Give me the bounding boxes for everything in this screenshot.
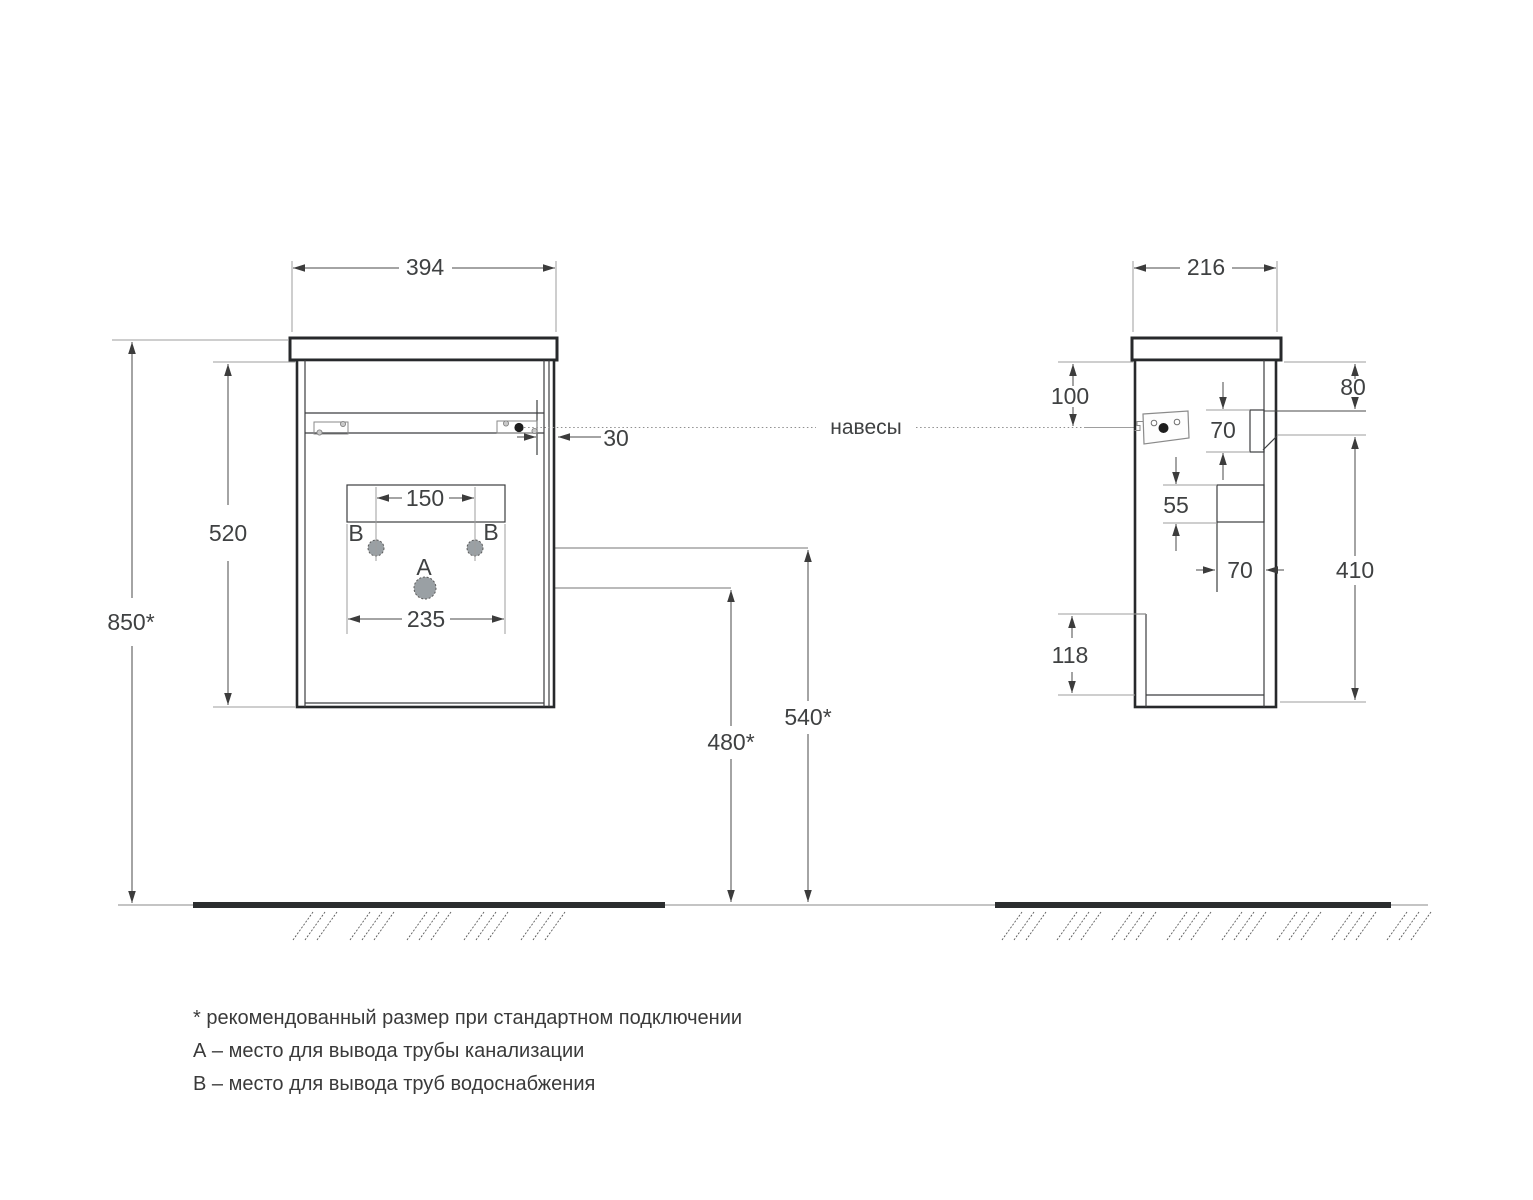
dim-value-216: 216 — [1187, 254, 1225, 280]
dim-hanger-from-top: 100 — [1051, 362, 1133, 426]
side-cabinet-body — [1135, 360, 1276, 707]
cabinet-installation-drawing: B B A 394 850* 520 30 150 235 — [0, 0, 1533, 1200]
dim-value-70-horiz: 70 — [1227, 557, 1253, 583]
technical-drawing-page: B B A 394 850* 520 30 150 235 — [0, 0, 1533, 1200]
dim-value-80: 80 — [1340, 374, 1366, 400]
dim-value-540: 540* — [784, 704, 831, 730]
footnote-recommended-size: * рекомендованный размер при стандартном… — [193, 1007, 742, 1029]
screw-icon — [532, 428, 537, 433]
dim-bottom-recess: 118 — [1052, 614, 1146, 695]
dim-value-235: 235 — [407, 606, 445, 632]
floor-bar-left — [193, 902, 665, 908]
floor-hatching — [293, 912, 1431, 940]
footnote-b-water: В – место для вывода труб водоснабжения — [193, 1073, 595, 1095]
dim-total-height: 850* — [107, 340, 289, 903]
dim-value-850: 850* — [107, 609, 154, 635]
dim-value-100: 100 — [1051, 383, 1089, 409]
dim-top-to-bracket: 80 — [1284, 362, 1366, 409]
dim-supply-height: 540* — [784, 550, 831, 902]
front-countertop — [290, 338, 557, 360]
screw-icon — [1174, 419, 1180, 425]
hanger-point-dot — [1159, 423, 1169, 433]
screw-icon — [317, 430, 322, 435]
footnotes: * рекомендованный размер при стандартном… — [193, 1007, 742, 1095]
drain-hole-a — [414, 577, 436, 599]
hanger-point-dot — [514, 423, 523, 432]
dim-front-width: 394 — [292, 254, 556, 332]
dim-value-55: 55 — [1163, 492, 1189, 518]
hole-label-a: A — [416, 554, 432, 580]
dim-value-480: 480* — [707, 729, 754, 755]
dim-value-394: 394 — [406, 254, 445, 280]
footnote-a-drain: А – место для вывода трубы канализации — [193, 1040, 584, 1062]
dim-value-150: 150 — [406, 485, 444, 511]
screw-icon — [340, 421, 345, 426]
hole-label-b-right: B — [483, 519, 498, 545]
screw-icon — [1151, 420, 1157, 426]
floor-bar-right — [995, 902, 1391, 908]
dim-drain-height: 480* — [707, 590, 754, 902]
hangers-label: навесы — [830, 416, 901, 439]
front-view: B B A — [290, 338, 808, 707]
dim-body-height: 520 — [209, 362, 295, 707]
dim-value-410: 410 — [1336, 557, 1374, 583]
hole-label-b-left: B — [348, 520, 363, 546]
dim-value-30: 30 — [603, 425, 629, 451]
floor — [118, 902, 1431, 940]
side-countertop — [1132, 338, 1281, 360]
screw-icon — [503, 421, 508, 426]
front-cabinet-body — [297, 360, 554, 707]
dim-value-520: 520 — [209, 520, 247, 546]
dim-bracket-to-bottom: 410 — [1277, 435, 1374, 702]
dim-value-118: 118 — [1052, 642, 1089, 668]
dim-depth: 216 — [1133, 254, 1277, 332]
dim-value-70-vert: 70 — [1210, 417, 1236, 443]
